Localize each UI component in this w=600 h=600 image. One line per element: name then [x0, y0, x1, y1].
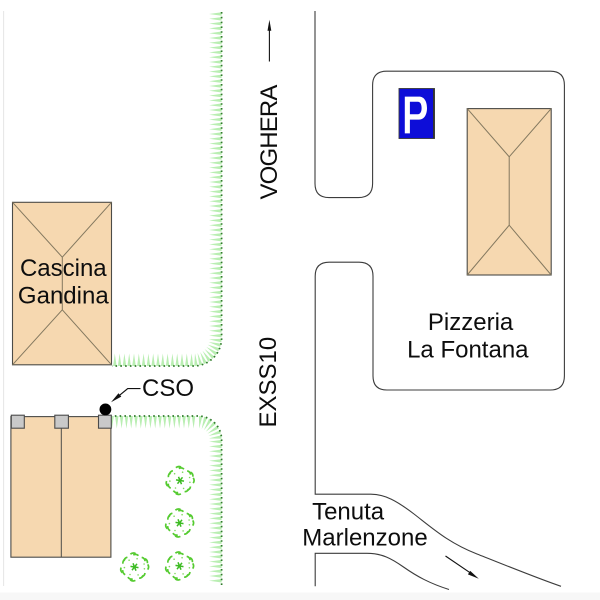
svg-text:Cascina: Cascina [20, 255, 107, 282]
svg-text:CSO: CSO [142, 375, 194, 402]
svg-text:Tenuta: Tenuta [312, 498, 385, 525]
svg-text:EXSS10: EXSS10 [255, 337, 282, 428]
svg-text:La Fontana: La Fontana [407, 337, 529, 364]
svg-text:Pizzeria: Pizzeria [428, 309, 514, 336]
svg-text:Gandina: Gandina [18, 282, 109, 309]
svg-text:VOGHERA: VOGHERA [256, 85, 283, 200]
svg-text:Marlenzone: Marlenzone [302, 525, 427, 552]
